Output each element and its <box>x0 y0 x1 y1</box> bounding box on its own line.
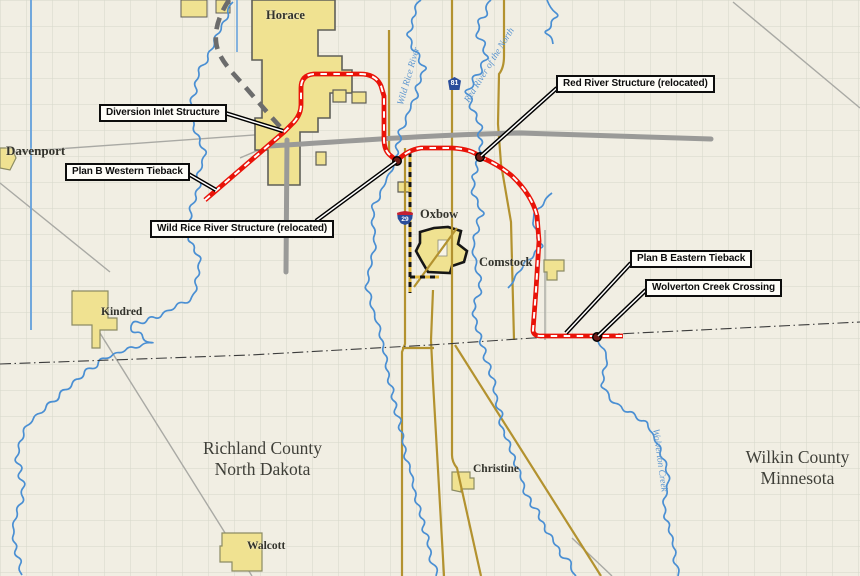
town-label-horace: Horace <box>266 8 305 23</box>
town-label-oxbow: Oxbow <box>420 207 458 222</box>
town-label-kindred: Kindred <box>101 306 142 318</box>
town-label-davenport: Davenport <box>6 143 65 159</box>
county-name: Wilkin County <box>715 447 860 468</box>
town-label-christine: Christine <box>473 463 519 475</box>
callout-plan-b-eastern-tieback: Plan B Eastern Tieback <box>630 250 752 268</box>
county-state: North Dakota <box>170 459 355 480</box>
county-state: Minnesota <box>715 468 860 489</box>
county-label-richland: Richland County North Dakota <box>170 438 355 479</box>
callout-wild-rice-river-structure: Wild Rice River Structure (relocated) <box>150 220 334 238</box>
county-label-wilkin: Wilkin County Minnesota <box>715 447 860 488</box>
callout-plan-b-western-tieback: Plan B Western Tieback <box>65 163 190 181</box>
callout-red-river-structure: Red River Structure (relocated) <box>556 75 715 93</box>
town-label-comstock: Comstock <box>479 255 532 270</box>
town-label-walcott: Walcott <box>247 540 285 552</box>
shield-number: 29 <box>401 216 408 223</box>
county-name: Richland County <box>170 438 355 459</box>
callout-diversion-inlet-structure: Diversion Inlet Structure <box>99 104 227 122</box>
map-figure: Horace Davenport Kindred Walcott Oxbow C… <box>0 0 860 576</box>
shield-number: 81 <box>451 80 459 87</box>
callout-wolverton-creek-crossing: Wolverton Creek Crossing <box>645 279 782 297</box>
